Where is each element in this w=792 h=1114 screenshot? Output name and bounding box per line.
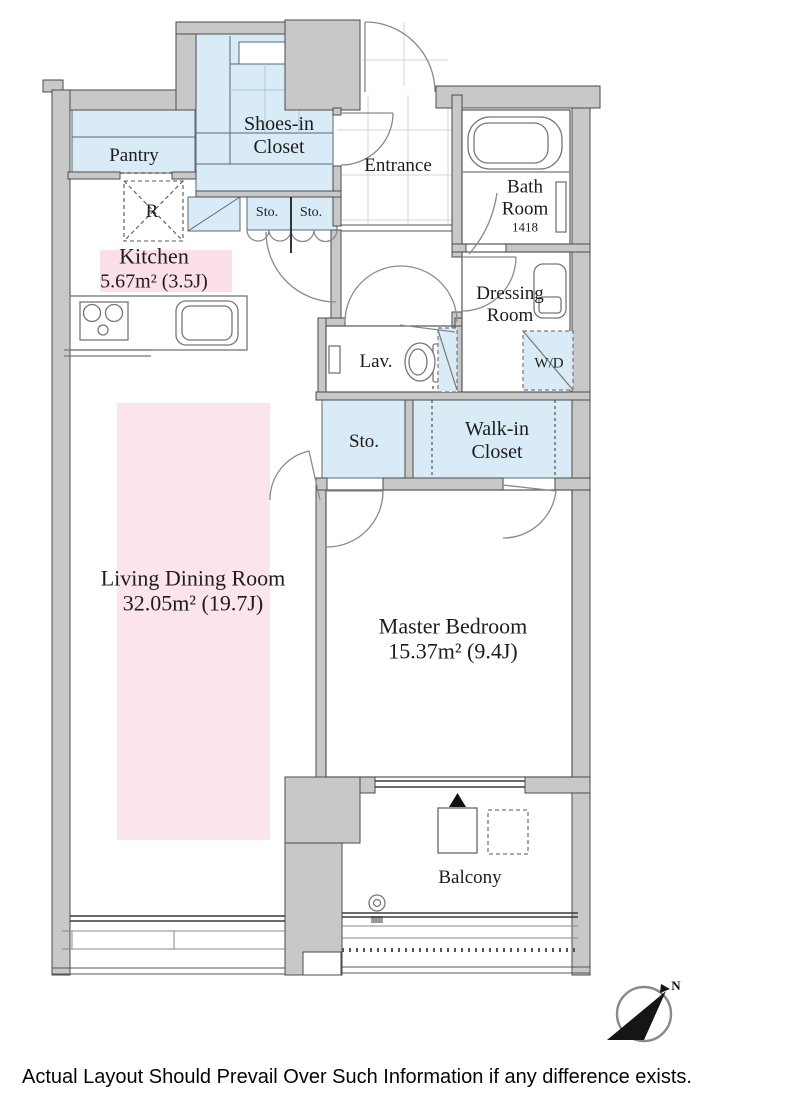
lav-door-arc	[345, 266, 457, 322]
bath-line1: Bath	[502, 177, 548, 199]
burner	[106, 305, 123, 322]
burner	[84, 305, 101, 322]
wall-left	[52, 90, 70, 975]
wall	[318, 318, 326, 400]
wall	[331, 230, 341, 322]
bathtub-inner	[474, 123, 548, 163]
wall	[333, 108, 341, 115]
living-area: 32.05m² (19.7J)	[101, 591, 286, 616]
wall	[452, 244, 466, 252]
left-railing	[52, 931, 285, 974]
wall	[196, 191, 341, 197]
sto-bifold	[291, 230, 314, 242]
room-label-bath: Bath Room 1418	[502, 177, 548, 236]
bath-line2: Room	[502, 199, 548, 221]
wall	[506, 244, 590, 252]
walkin-line1: Walk-in	[465, 418, 529, 441]
room-label-walkin-closet: Walk-in Closet	[465, 418, 529, 464]
pillar	[285, 777, 360, 843]
wall	[555, 478, 590, 490]
master-door-arc	[327, 491, 383, 547]
living-door-leaf	[309, 451, 320, 500]
sto-bifold	[269, 230, 291, 241]
entry-door-arc	[365, 22, 435, 92]
bath-counter	[556, 182, 566, 232]
wall	[452, 95, 462, 257]
room-label-living-dining: Living Dining Room 32.05m² (19.7J)	[101, 566, 286, 617]
wall	[405, 400, 413, 478]
hall-door-arc	[266, 232, 336, 302]
room-label-lav: Lav.	[359, 351, 392, 373]
master-window	[375, 781, 525, 787]
wall	[525, 777, 590, 793]
floor-plan-page: Pantry Shoes-in Closet Entrance Bath Roo…	[0, 0, 792, 1114]
wall	[316, 392, 590, 400]
balcony-drain-inner	[374, 900, 381, 907]
entrance-step	[337, 225, 452, 231]
pillar-notch	[303, 952, 341, 975]
pillar	[285, 20, 360, 110]
label-sto-b: Sto.	[300, 205, 322, 221]
wall-right	[572, 108, 590, 975]
kitchen-sink-inner	[182, 306, 232, 340]
hatch-marker	[449, 793, 466, 807]
wall	[176, 22, 296, 34]
wall	[172, 172, 196, 179]
north-label: N	[671, 978, 680, 994]
wall	[455, 318, 462, 326]
label-wd: W/D	[534, 355, 563, 372]
living-door-arc	[270, 451, 309, 500]
balcony-dashed-box	[488, 810, 528, 854]
shoes-closet-line2: Closet	[244, 136, 314, 159]
wall	[176, 22, 196, 110]
room-label-entrance: Entrance	[364, 155, 432, 177]
toilet-seat	[409, 349, 427, 375]
living-name: Living Dining Room	[101, 566, 286, 591]
paper-holder	[329, 346, 340, 373]
room-label-pantry: Pantry	[109, 145, 159, 167]
balcony-hatch	[438, 808, 477, 853]
master-area: 15.37m² (9.4J)	[379, 639, 527, 664]
dressing-line2: Room	[476, 305, 544, 327]
bath-size: 1418	[502, 220, 548, 235]
room-label-sto-main: Sto.	[349, 431, 379, 453]
shoes-closet-line1: Shoes-in	[244, 113, 314, 136]
living-highlight	[117, 403, 270, 840]
walkin-line2: Closet	[465, 441, 529, 464]
walkin-door-arc	[503, 491, 556, 538]
compass-north-icon	[607, 984, 671, 1041]
bath-fold-door	[469, 193, 497, 254]
kitchen-area-label: 5.67m² (3.5J)	[100, 271, 208, 294]
master-name: Master Bedroom	[379, 614, 527, 639]
wall	[316, 490, 326, 780]
wall	[383, 478, 503, 490]
wall	[68, 172, 120, 179]
room-label-kitchen: Kitchen	[119, 243, 189, 268]
room-label-shoes-closet: Shoes-in Closet	[244, 113, 314, 159]
burner	[98, 325, 108, 335]
label-sto-a: Sto.	[256, 205, 278, 221]
wall	[52, 90, 196, 110]
disclaimer-text: Actual Layout Should Prevail Over Such I…	[22, 1066, 692, 1089]
room-label-dressing: Dressing Room	[476, 283, 544, 327]
living-window	[70, 916, 285, 921]
room-label-balcony: Balcony	[438, 867, 501, 889]
label-fridge: R	[146, 201, 159, 223]
dressing-line1: Dressing	[476, 283, 544, 305]
room-label-master-bedroom: Master Bedroom 15.37m² (9.4J)	[379, 614, 527, 665]
